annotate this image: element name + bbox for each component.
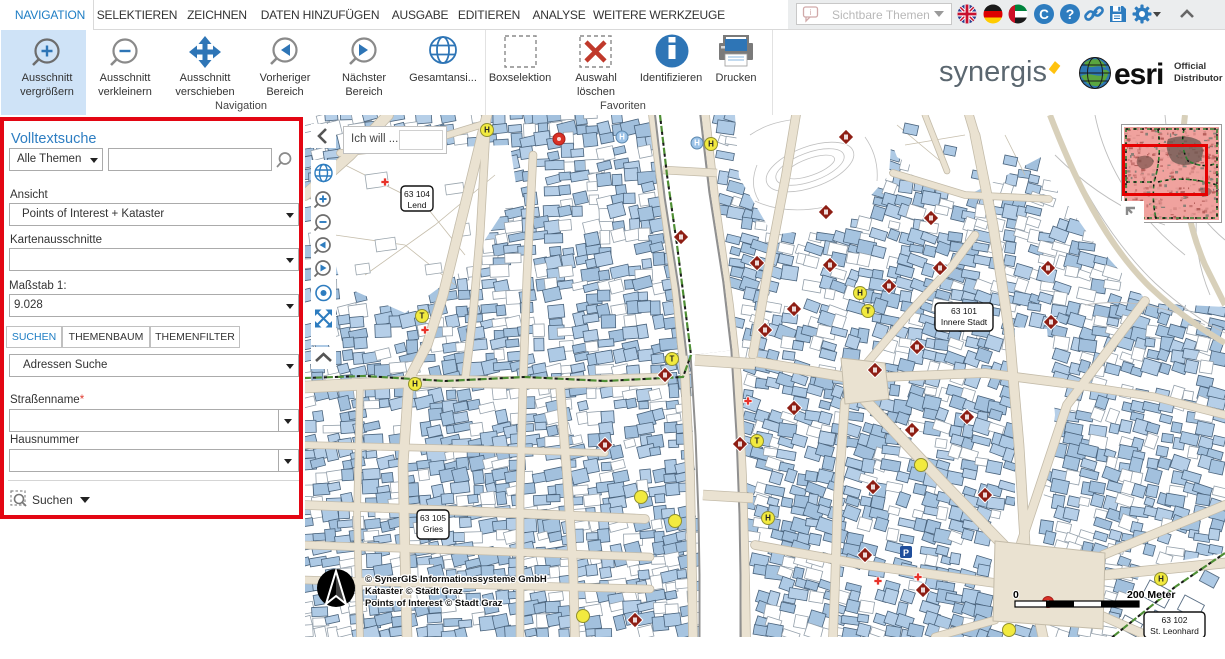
svg-text:H: H	[765, 514, 771, 523]
svg-text:63 104: 63 104	[404, 189, 430, 199]
svg-text:H: H	[857, 289, 863, 298]
svg-text:Kataster © Stadt Graz: Kataster © Stadt Graz	[365, 586, 463, 597]
svg-text:Nächster: Nächster	[342, 72, 386, 84]
svg-text:vergrößern: vergrößern	[20, 86, 74, 98]
svg-text:H: H	[1158, 575, 1164, 584]
svg-text:63 105: 63 105	[420, 513, 446, 523]
svg-text:St. Leonhard: St. Leonhard	[1150, 626, 1199, 636]
svg-text:T: T	[670, 355, 675, 364]
svg-text:T: T	[866, 307, 871, 316]
svg-text:i: i	[810, 8, 812, 17]
svg-text:Drucken: Drucken	[716, 72, 757, 84]
svg-text:Lend: Lend	[408, 200, 427, 210]
svg-text:Vorheriger: Vorheriger	[260, 72, 311, 84]
svg-text:Bereich: Bereich	[266, 86, 303, 98]
svg-text:Points of Interest © Stadt Gra: Points of Interest © Stadt Graz	[365, 598, 503, 609]
svg-text:Innere Stadt: Innere Stadt	[941, 317, 988, 327]
svg-text:0: 0	[1013, 589, 1019, 601]
svg-text:esri: esri	[1114, 58, 1163, 90]
svg-text:H: H	[694, 139, 700, 148]
svg-text:200 Meter: 200 Meter	[1127, 589, 1175, 601]
svg-text:Distributor: Distributor	[1174, 73, 1223, 84]
svg-text:löschen: löschen	[577, 86, 615, 98]
svg-text:H: H	[708, 140, 714, 149]
svg-text:Identifizieren: Identifizieren	[640, 72, 702, 84]
svg-text:Ausschnitt: Ausschnitt	[180, 72, 231, 84]
svg-text:P: P	[903, 548, 909, 558]
svg-text:H: H	[412, 380, 418, 389]
svg-text:H: H	[619, 133, 625, 142]
svg-text:Gries: Gries	[423, 524, 443, 534]
svg-text:T: T	[755, 437, 760, 446]
svg-text:?: ?	[1066, 6, 1075, 22]
svg-text:C: C	[1039, 7, 1049, 22]
svg-text:Gesamtansi...: Gesamtansi...	[409, 72, 477, 84]
svg-text:Ausschnitt: Ausschnitt	[22, 72, 73, 84]
svg-text:Boxselektion: Boxselektion	[489, 72, 551, 84]
svg-text:63 102: 63 102	[1162, 615, 1188, 625]
svg-text:Official: Official	[1174, 61, 1206, 72]
svg-text:T: T	[420, 312, 425, 321]
svg-text:verschieben: verschieben	[175, 86, 234, 98]
svg-text:© SynerGIS Informationssysteme: © SynerGIS Informationssysteme GmbH	[365, 574, 547, 585]
svg-text:Auswahl: Auswahl	[575, 72, 617, 84]
svg-text:63 101: 63 101	[951, 306, 977, 316]
svg-text:Ausschnitt: Ausschnitt	[100, 72, 151, 84]
svg-text:Bereich: Bereich	[345, 86, 382, 98]
svg-text:H: H	[484, 126, 490, 135]
svg-text:verkleinern: verkleinern	[98, 86, 152, 98]
